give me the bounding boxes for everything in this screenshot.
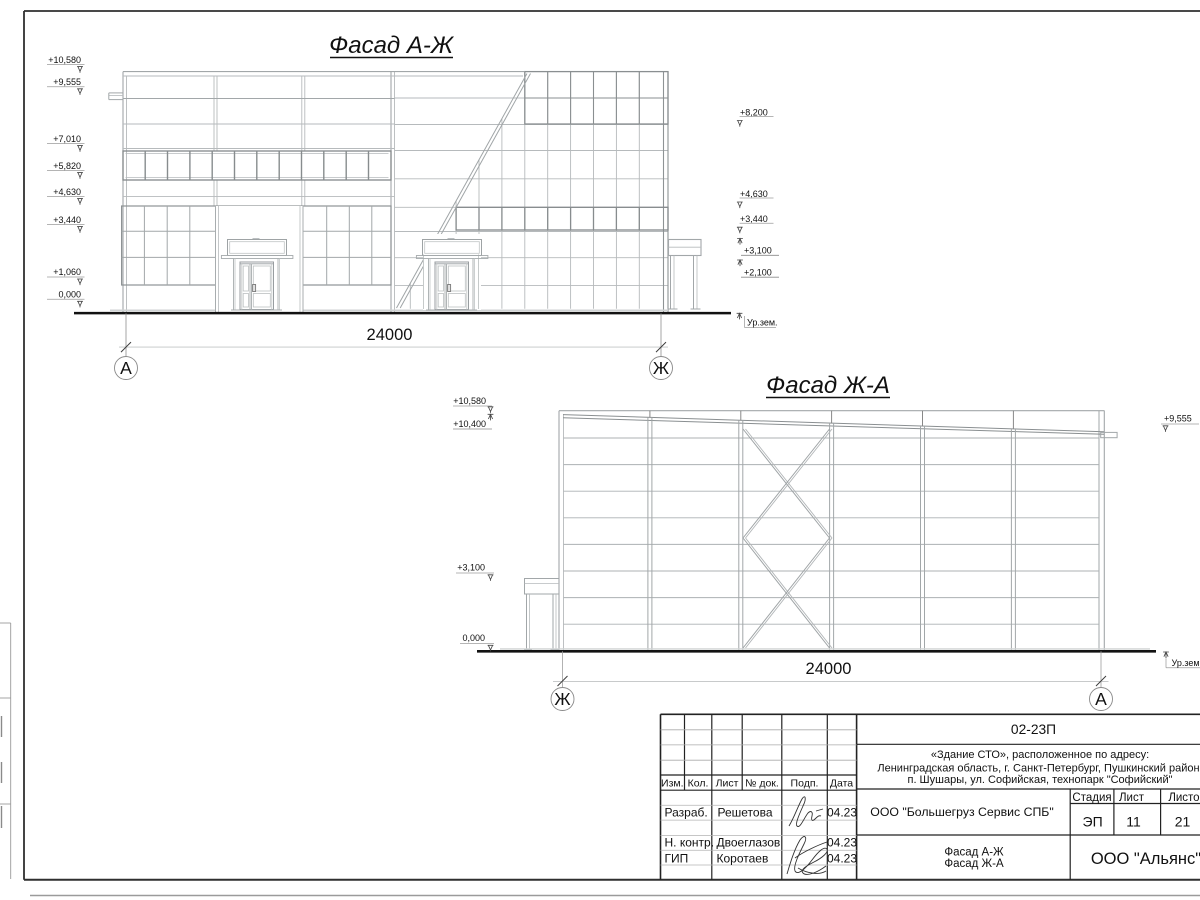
svg-text:Изм.: Изм. (661, 777, 684, 789)
svg-text:Лист: Лист (716, 777, 739, 789)
svg-text:Фасад Ж-А: Фасад Ж-А (766, 372, 890, 399)
svg-text:ГИП: ГИП (665, 851, 689, 865)
svg-text:+3,100: +3,100 (457, 563, 485, 573)
svg-text:Листов: Листов (1168, 792, 1200, 804)
svg-text:+1,060: +1,060 (53, 267, 81, 277)
svg-text:ЭП: ЭП (1083, 814, 1103, 830)
svg-text:+3,440: +3,440 (740, 214, 768, 224)
svg-text:Фасад А-Ж: Фасад А-Ж (329, 32, 455, 59)
svg-text:04.23: 04.23 (827, 851, 857, 865)
svg-text:Двоеглазов: Двоеглазов (717, 836, 781, 850)
svg-text:11: 11 (1126, 814, 1141, 830)
svg-text:+5,820: +5,820 (53, 161, 81, 171)
svg-text:+10,400: +10,400 (453, 419, 486, 429)
svg-text:02-23П: 02-23П (1011, 722, 1056, 737)
svg-text:04.23: 04.23 (827, 806, 857, 820)
svg-text:Ж: Ж (554, 689, 570, 709)
svg-text:21: 21 (1175, 814, 1191, 830)
svg-text:24000: 24000 (367, 326, 413, 344)
svg-text:А: А (1095, 689, 1107, 709)
svg-text:А: А (120, 358, 132, 378)
svg-text:04.23: 04.23 (827, 836, 857, 850)
svg-text:ООО "Большегруз Сервис СПБ": ООО "Большегруз Сервис СПБ" (870, 805, 1053, 819)
svg-text:Фасад Ж-А: Фасад Ж-А (944, 858, 1004, 870)
svg-text:+4,630: +4,630 (53, 187, 81, 197)
svg-text:0,000: 0,000 (462, 633, 485, 643)
svg-text:Ж: Ж (653, 358, 669, 378)
svg-text:Подп.: Подп. (791, 777, 819, 789)
svg-text:+3,100: +3,100 (744, 245, 772, 255)
svg-text:Ленинградская область, г. Санк: Ленинградская область, г. Санкт-Петербур… (877, 762, 1200, 774)
svg-text:+10,580: +10,580 (453, 396, 486, 406)
svg-text:+8,200: +8,200 (740, 108, 768, 118)
svg-text:Стадия: Стадия (1072, 792, 1111, 804)
svg-text:«Здание СТО», расположенное по: «Здание СТО», расположенное по адресу: (931, 749, 1149, 761)
svg-text:Ур.зем.: Ур.зем. (1172, 658, 1200, 668)
svg-text:ООО "Альянс": ООО "Альянс" (1091, 850, 1200, 868)
svg-text:+10,580: +10,580 (48, 55, 81, 65)
svg-text:Фасад А-Ж: Фасад А-Ж (944, 847, 1004, 859)
svg-text:+2,100: +2,100 (744, 267, 772, 277)
svg-text:Решетова: Решетова (718, 806, 773, 820)
svg-text:+9,555: +9,555 (53, 77, 81, 87)
svg-text:Н. контр.: Н. контр. (665, 836, 715, 850)
svg-text:+3,440: +3,440 (53, 215, 81, 225)
svg-text:Коротаев: Коротаев (717, 851, 769, 865)
svg-text:24000: 24000 (806, 660, 852, 678)
svg-text:Лист: Лист (1119, 792, 1145, 804)
svg-text:Разраб.: Разраб. (665, 806, 708, 820)
svg-text:+9,555: +9,555 (1164, 414, 1192, 424)
svg-text:Кол.: Кол. (688, 777, 709, 789)
svg-text:0,000: 0,000 (58, 290, 81, 300)
svg-text:№ док.: № док. (745, 777, 779, 789)
svg-text:+4,630: +4,630 (740, 189, 768, 199)
svg-text:+7,010: +7,010 (53, 134, 81, 144)
svg-text:п. Шушары, ул. Софийская, техн: п. Шушары, ул. Софийская, технопарк "Соф… (907, 774, 1172, 786)
svg-text:Дата: Дата (830, 777, 853, 789)
svg-text:Ур.зем.: Ур.зем. (747, 318, 778, 328)
